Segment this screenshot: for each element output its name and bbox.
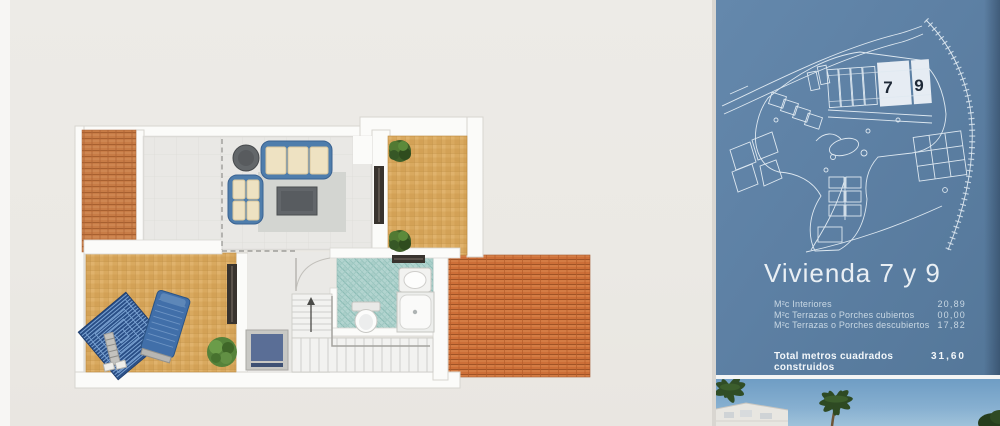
info-sidebar: 7 9 Vivienda 7 y 9 M²c Interiores 20,89 … bbox=[712, 0, 1000, 426]
pool-shape bbox=[827, 135, 860, 159]
planter-bush-top bbox=[389, 140, 411, 162]
garden-bush bbox=[207, 337, 237, 367]
blue-panel: 7 9 Vivienda 7 y 9 M²c Interiores 20,89 … bbox=[716, 0, 1000, 375]
site-plan: 7 9 bbox=[716, 0, 1000, 254]
total-label: Total metros cuadrados construidos bbox=[774, 351, 931, 373]
stat-value: 20,89 bbox=[937, 299, 966, 310]
blue-mat bbox=[246, 330, 288, 370]
brochure-page: 7 9 Vivienda 7 y 9 M²c Interiores 20,89 … bbox=[0, 0, 1000, 426]
stat-value: 00,00 bbox=[937, 310, 966, 321]
floor-plan bbox=[0, 0, 660, 426]
roof-left bbox=[82, 130, 136, 252]
panel-title: Vivienda 7 y 9 bbox=[764, 258, 941, 289]
roof-right bbox=[448, 255, 590, 377]
stat-label: M²c Interiores bbox=[774, 299, 832, 310]
photo-strip bbox=[716, 379, 1000, 426]
round-table bbox=[233, 145, 259, 171]
total-value: 31,60 bbox=[931, 351, 966, 373]
right-building-cluster bbox=[913, 131, 967, 181]
coffee-table bbox=[277, 187, 317, 215]
unit-label-7: 7 bbox=[883, 78, 892, 97]
stat-label: M²c Terrazas o Porches cubiertos bbox=[774, 310, 914, 321]
stat-label: M²c Terrazas o Porches descubiertos bbox=[774, 320, 929, 331]
stat-row-porches-cubiertos: M²c Terrazas o Porches cubiertos 00,00 bbox=[774, 310, 966, 321]
total-row: Total metros cuadrados construidos 31,60 bbox=[774, 351, 966, 373]
exterior-photo bbox=[716, 379, 1000, 426]
shower bbox=[397, 292, 434, 332]
area-stats: M²c Interiores 20,89 M²c Terrazas o Porc… bbox=[774, 299, 966, 331]
planter-bush-bottom bbox=[389, 230, 411, 252]
unit-label-9: 9 bbox=[914, 76, 923, 95]
stat-row-interiores: M²c Interiores 20,89 bbox=[774, 299, 966, 310]
stat-row-porches-descubiertos: M²c Terrazas o Porches descubiertos 17,8… bbox=[774, 320, 966, 331]
wall-notch bbox=[353, 136, 372, 164]
sink bbox=[399, 268, 431, 292]
stat-value: 17,82 bbox=[937, 320, 966, 331]
